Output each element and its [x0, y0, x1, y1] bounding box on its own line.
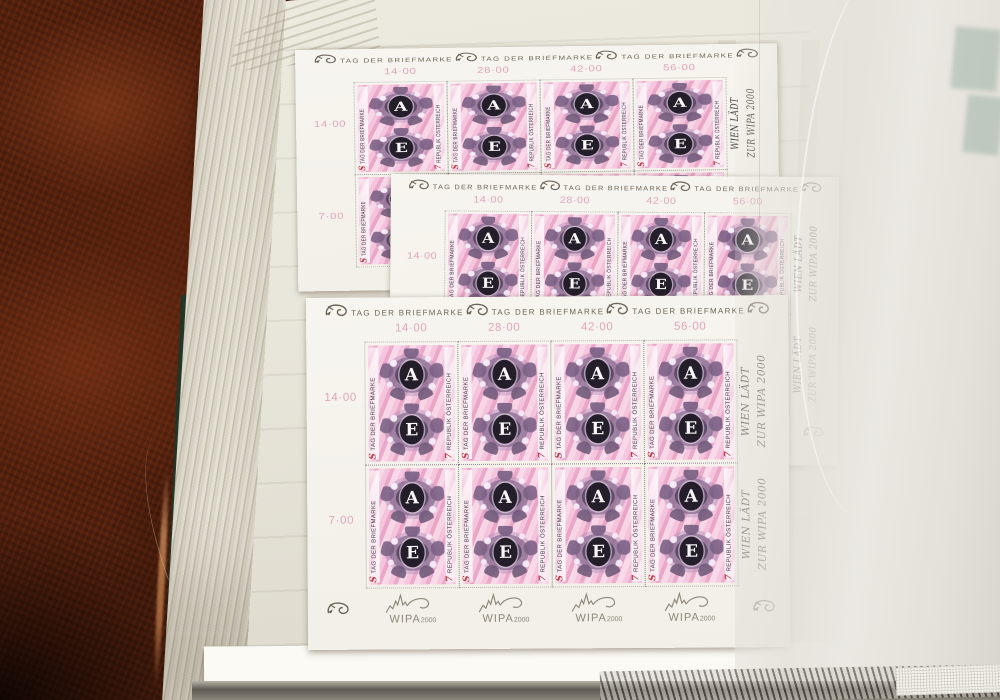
stamp-right-text: REPUBLIK ÖSTERREICH	[622, 102, 629, 160]
row-total: 14·00	[402, 251, 443, 261]
letter-e-medallion: E	[679, 537, 703, 566]
stamp: S TAG DER BRIEFMARKE A E 7 REPUBLIK ÖSTE…	[357, 84, 444, 172]
schilling-symbol: S	[648, 451, 657, 458]
sheet-title: TAG DER BRIEFMARKE	[621, 52, 734, 60]
stamp-right-text: REPUBLIK ÖSTERREICH	[447, 496, 453, 573]
stamp-right-inscription: 7 REPUBLIK ÖSTERREICH	[619, 83, 630, 167]
posthorn-icon	[408, 177, 432, 191]
letter-a-medallion: A	[399, 360, 423, 389]
denomination-value: 7	[631, 451, 640, 458]
posthorn-slot	[313, 52, 339, 69]
stamp-left-inscription: S TAG DER BRIEFMARKE	[359, 179, 370, 263]
wipa-logo-text: WIPA2000	[570, 613, 628, 624]
denomination-value: 7	[621, 162, 630, 167]
wipa-2000-logo: WIPA2000	[570, 592, 628, 630]
letter-a-medallion: A	[585, 359, 609, 388]
posthorn-slot	[454, 50, 480, 67]
stamp: S TAG DER BRIEFMARKE A E 7 REPUBLIK ÖSTE…	[369, 468, 456, 585]
stamp-right-inscription: 7 REPUBLIK ÖSTERREICH	[434, 85, 445, 169]
stamp-left-inscription: S TAG DER BRIEFMARKE	[369, 471, 380, 583]
page-curve-highlight	[782, 0, 973, 524]
stamp-left-text: TAG DER BRIEFMARKE	[370, 378, 376, 451]
stamp-right-inscription: 7 REPUBLIK ÖSTERREICH	[724, 468, 735, 580]
letter-e-medallion: E	[477, 271, 499, 295]
stamp-left-text: TAG DER BRIEFMARKE	[650, 499, 656, 572]
stamp: S TAG DER BRIEFMARKE A E 7 REPUBLIK ÖSTE…	[648, 466, 735, 583]
schilling-symbol: S	[545, 163, 554, 168]
wipa-logo-slot: WIPA2000	[384, 593, 442, 631]
stamp-left-inscription: S TAG DER BRIEFMARKE	[647, 346, 658, 458]
letter-a-medallion: A	[400, 483, 424, 512]
stamp-right-inscription: 7 REPUBLIK ÖSTERREICH	[518, 216, 528, 308]
denomination-value: 7	[714, 161, 723, 166]
stamp-left-text: TAG DER BRIEFMARKE	[371, 501, 377, 574]
stamp-left-inscription: S TAG DER BRIEFMARKE	[461, 347, 472, 459]
stamp-left-inscription: S TAG DER BRIEFMARKE	[543, 84, 554, 168]
schilling-symbol: S	[556, 575, 565, 582]
sheet-title: TAG DER BRIEFMARKE	[351, 308, 464, 318]
stamp-left-inscription: S TAG DER BRIEFMARKE	[358, 86, 369, 170]
row-total: 14·00	[319, 392, 363, 404]
sheet-title: TAG DER BRIEFMARKE	[564, 184, 669, 192]
schilling-symbol: S	[638, 161, 647, 166]
posthorn-slot	[408, 177, 432, 195]
sheet-top-margin: TAG DER BRIEFMARKE TAG DER BRIEFMARKE TA…	[324, 301, 772, 322]
stamp-left-text: TAG DER BRIEFMARKE	[360, 109, 367, 164]
denomination-value: 7	[632, 574, 641, 581]
stamp-right-text: REPUBLIK ÖSTERREICH	[725, 371, 731, 448]
stamp-right-text: REPUBLIK ÖSTERREICH	[632, 372, 638, 449]
stamp-left-text: TAG DER BRIEFMARKE	[361, 201, 368, 256]
stamp-left-inscription: S TAG DER BRIEFMARKE	[555, 469, 566, 581]
stamp-right-text: REPUBLIK ÖSTERREICH	[693, 238, 699, 301]
stamp-right-inscription: 7 REPUBLIK ÖSTERREICH	[444, 347, 455, 459]
column-total: 42·00	[621, 196, 701, 206]
wipa-2000-logo: WIPA2000	[384, 593, 442, 631]
stamp-left-text: TAG DER BRIEFMARKE	[557, 499, 563, 572]
stamp: S TAG DER BRIEFMARKE A E 7 REPUBLIK ÖSTE…	[461, 345, 548, 462]
stamp-right-inscription: 7 REPUBLIK ÖSTERREICH	[723, 345, 734, 457]
stamp-right-text: REPUBLIK ÖSTERREICH	[715, 101, 722, 159]
stamp-left-text: TAG DER BRIEFMARKE	[453, 108, 460, 163]
posthorn-icon	[465, 301, 491, 318]
wipa-2000-skyline-icon	[664, 591, 720, 612]
stamp-right-text: REPUBLIK ÖSTERREICH	[446, 373, 452, 450]
stamp-left-text: TAG DER BRIEFMARKE	[536, 241, 542, 301]
column-total: 14·00	[368, 322, 454, 335]
letter-a-medallion: A	[679, 482, 703, 511]
stamp: S TAG DER BRIEFMARKE A E 7 REPUBLIK ÖSTE…	[450, 83, 537, 171]
letter-e-medallion: E	[586, 414, 610, 443]
column-total: 42·00	[554, 321, 640, 334]
stamp: S TAG DER BRIEFMARKE A E 7 REPUBLIK ÖSTE…	[543, 81, 630, 169]
posthorn-icon	[454, 50, 480, 63]
column-total: 28·00	[450, 65, 536, 75]
row-total: 7·00	[309, 212, 353, 222]
posthorn-icon	[605, 300, 631, 317]
column-total: 28·00	[461, 322, 547, 335]
letter-a-medallion: A	[586, 482, 610, 511]
column-total: 14·00	[448, 195, 528, 205]
schilling-symbol: S	[360, 258, 369, 263]
stamp-left-text: TAG DER BRIEFMARKE	[464, 500, 470, 573]
stamp-left-inscription: S TAG DER BRIEFMARKE	[636, 83, 647, 167]
stamp-left-text: TAG DER BRIEFMARKE	[546, 106, 553, 161]
stamp-left-text: TAG DER BRIEFMARKE	[623, 241, 629, 301]
wipa-logo-text: WIPA2000	[663, 612, 721, 623]
letter-a-medallion: A	[493, 483, 517, 512]
stamp-left-text: TAG DER BRIEFMARKE	[450, 240, 456, 300]
posthorn-icon	[538, 178, 562, 192]
stamp-left-text: TAG DER BRIEFMARKE	[639, 105, 646, 160]
stamp-right-text: REPUBLIK ÖSTERREICH	[539, 373, 545, 450]
denomination-value: 7	[538, 452, 547, 459]
wipa-2000-skyline-icon	[571, 592, 627, 613]
row-total: 14·00	[308, 120, 352, 130]
letter-a-medallion: A	[477, 226, 499, 250]
stamp-right-text: REPUBLIK ÖSTERREICH	[436, 105, 443, 163]
posthorn-slot	[324, 302, 350, 324]
stamp-right-text: REPUBLIK ÖSTERREICH	[726, 494, 732, 571]
column-total: 28·00	[535, 196, 615, 206]
denomination-value: 7	[539, 575, 548, 582]
wipa-logo-slot: WIPA2000	[570, 592, 628, 630]
sheet-title: TAG DER BRIEFMARKE	[340, 56, 453, 64]
wipa-2000-logo: WIPA2000	[663, 591, 721, 629]
denomination-value: 7	[724, 451, 733, 458]
letter-a-medallion: A	[650, 227, 672, 251]
posthorn-slot	[669, 179, 693, 197]
stamp: S TAG DER BRIEFMARKE A E 7 REPUBLIK ÖSTE…	[462, 468, 549, 585]
letter-a-medallion: A	[678, 359, 702, 388]
stamp-right-inscription: 7 REPUBLIK ÖSTERREICH	[537, 347, 548, 459]
stamp-grid: S TAG DER BRIEFMARKE A E 7 REPUBLIK ÖSTE…	[368, 343, 734, 584]
stamp-left-text: TAG DER BRIEFMARKE	[649, 376, 655, 449]
stamp-right-inscription: 7 REPUBLIK ÖSTERREICH	[445, 470, 456, 582]
stamp-left-inscription: S TAG DER BRIEFMARKE	[534, 216, 544, 308]
posthorn-icon	[326, 600, 352, 617]
denomination-value: 7	[435, 164, 444, 169]
stamp: S TAG DER BRIEFMARKE A E 7 REPUBLIK ÖSTE…	[554, 344, 641, 461]
posthorn-icon	[313, 52, 339, 65]
column-total: 14·00	[357, 67, 443, 77]
stamp: S TAG DER BRIEFMARKE A E 7 REPUBLIK ÖSTE…	[448, 214, 529, 310]
stamp-right-inscription: 7 REPUBLIK ÖSTERREICH	[712, 82, 723, 166]
letter-e-medallion: E	[493, 538, 517, 567]
stamp-left-inscription: S TAG DER BRIEFMARKE	[648, 469, 659, 581]
wipa-logo-slot: WIPA2000	[663, 591, 721, 629]
letter-e-medallion: E	[400, 415, 424, 444]
wipa-logo-slot: WIPA2000	[477, 593, 535, 631]
stamp-left-inscription: S TAG DER BRIEFMARKE	[368, 348, 379, 460]
letter-e-medallion: E	[586, 537, 610, 566]
stamp-left-inscription: S TAG DER BRIEFMARKE	[462, 470, 473, 582]
stamp: S TAG DER BRIEFMARKE A E 7 REPUBLIK ÖSTE…	[555, 467, 642, 584]
sheet-bottom-margin: WIPA2000 WIPA2000 WIPA2000 WIPA2000	[308, 589, 790, 638]
sheet-title: TAG DER BRIEFMARKE	[481, 54, 594, 62]
stamp-left-text: TAG DER BRIEFMARKE	[556, 376, 562, 449]
posthorn-slot	[605, 300, 631, 322]
stamp-left-inscription: S TAG DER BRIEFMARKE	[451, 85, 462, 169]
glassine-interleaf-page	[735, 0, 1000, 700]
stamp-right-text: REPUBLIK ÖSTERREICH	[540, 496, 546, 573]
denomination-value: 7	[725, 574, 734, 581]
posthorn-icon	[324, 302, 350, 319]
schilling-symbol: S	[370, 576, 379, 583]
stamp-left-inscription: S TAG DER BRIEFMARKE	[621, 217, 631, 309]
column-total: 56·00	[636, 63, 722, 73]
letter-e-medallion: E	[679, 414, 703, 443]
column-total: 56·00	[647, 320, 733, 333]
wipa-logo-row: WIPA2000 WIPA2000 WIPA2000 WIPA2000	[370, 591, 735, 631]
letter-e-medallion: E	[650, 273, 672, 297]
stamp-right-inscription: 7 REPUBLIK ÖSTERREICH	[527, 84, 538, 168]
letter-e-medallion: E	[563, 272, 585, 296]
wipa-logo-text: WIPA2000	[477, 614, 535, 625]
sheet-title: TAG DER BRIEFMARKE	[492, 307, 605, 317]
schilling-symbol: S	[369, 453, 378, 460]
wipa-2000-skyline-icon	[385, 593, 441, 614]
stamp-showing-through	[962, 94, 1000, 155]
stamp-right-inscription: 7 REPUBLIK ÖSTERREICH	[605, 216, 615, 308]
schilling-symbol: S	[462, 452, 471, 459]
stamp-right-text: REPUBLIK ÖSTERREICH	[633, 495, 639, 572]
stamp-right-inscription: 7 REPUBLIK ÖSTERREICH	[538, 470, 549, 582]
stamp-left-inscription: S TAG DER BRIEFMARKE	[448, 215, 458, 307]
page-curve-seam	[759, 0, 760, 230]
stamp: S TAG DER BRIEFMARKE A E 7 REPUBLIK ÖSTE…	[647, 343, 734, 460]
letter-a-medallion: A	[563, 227, 585, 251]
posthorn-slot	[594, 48, 620, 65]
stamp: S TAG DER BRIEFMARKE A E 7 REPUBLIK ÖSTE…	[368, 345, 455, 462]
column-total: 42·00	[543, 64, 629, 74]
stamp-sheet-front: TAG DER BRIEFMARKE TAG DER BRIEFMARKE TA…	[306, 295, 790, 650]
stamp-right-inscription: 7 REPUBLIK ÖSTERREICH	[631, 469, 642, 581]
schilling-symbol: S	[463, 575, 472, 582]
stamp: S TAG DER BRIEFMARKE A E 7 REPUBLIK ÖSTE…	[636, 80, 723, 168]
posthorn-icon	[669, 179, 693, 193]
denomination-value: 7	[445, 452, 454, 459]
wipa-2000-logo: WIPA2000	[477, 593, 535, 631]
denomination-value: 7	[528, 163, 537, 168]
stamp-right-text: REPUBLIK ÖSTERREICH	[520, 237, 526, 300]
wipa-logo-text: WIPA2000	[384, 614, 442, 625]
posthorn-slot	[326, 600, 352, 622]
stamp-showing-through	[950, 26, 1000, 92]
posthorn-slot	[538, 178, 562, 196]
letter-a-medallion: A	[492, 360, 516, 389]
letter-e-medallion: E	[400, 538, 424, 567]
photo-stamp-album: TAG DER BRIEFMARKE TAG DER BRIEFMARKE TA…	[0, 0, 1000, 700]
sheet-title: TAG DER BRIEFMARKE	[632, 306, 745, 316]
row-total: 7·00	[319, 515, 363, 527]
posthorn-icon	[594, 48, 620, 61]
binding-tape-edge	[896, 664, 1000, 696]
schilling-symbol: S	[649, 574, 658, 581]
stamp-right-inscription: 7 REPUBLIK ÖSTERREICH	[630, 346, 641, 458]
column-totals-row: 14·00 28·00 42·00 56·00	[368, 320, 733, 334]
wipa-2000-skyline-icon	[478, 593, 534, 614]
schilling-symbol: S	[452, 164, 461, 169]
stamp-left-text: TAG DER BRIEFMARKE	[463, 377, 469, 450]
posthorn-slot	[465, 301, 491, 323]
letter-e-medallion: E	[493, 415, 517, 444]
schilling-symbol: S	[359, 165, 368, 170]
stamp-right-text: REPUBLIK ÖSTERREICH	[529, 104, 536, 162]
schilling-symbol: S	[555, 452, 564, 459]
sheet-title: TAG DER BRIEFMARKE	[433, 183, 538, 191]
stamp-right-text: REPUBLIK ÖSTERREICH	[607, 238, 613, 301]
stamp-left-text: TAG DER BRIEFMARKE	[709, 242, 715, 302]
stamp-left-inscription: S TAG DER BRIEFMARKE	[554, 346, 565, 458]
denomination-value: 7	[446, 575, 455, 582]
